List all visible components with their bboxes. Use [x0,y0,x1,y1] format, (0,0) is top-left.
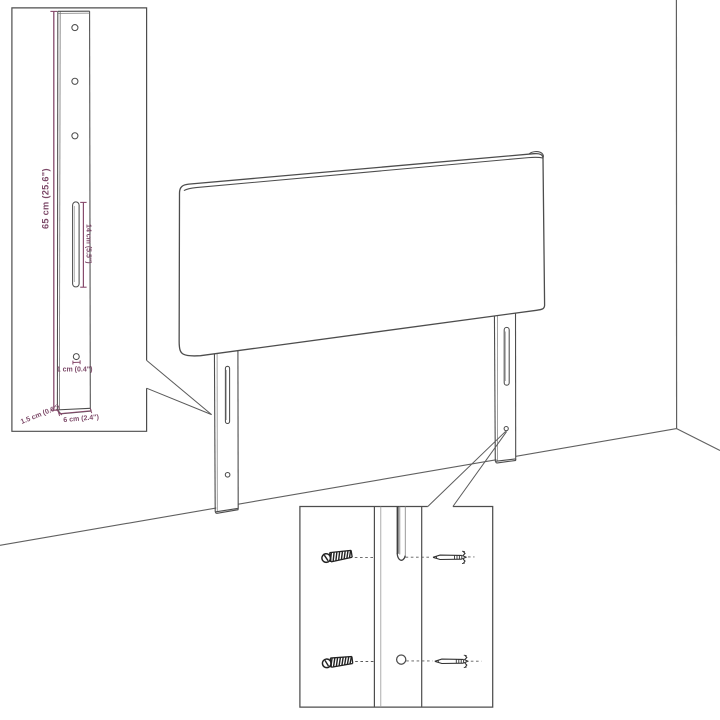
svg-text:14 cm (5.5"): 14 cm (5.5") [84,224,91,264]
svg-text:1 cm (0.4"): 1 cm (0.4") [57,366,93,373]
svg-text:65 cm (25.6"): 65 cm (25.6") [41,168,51,229]
